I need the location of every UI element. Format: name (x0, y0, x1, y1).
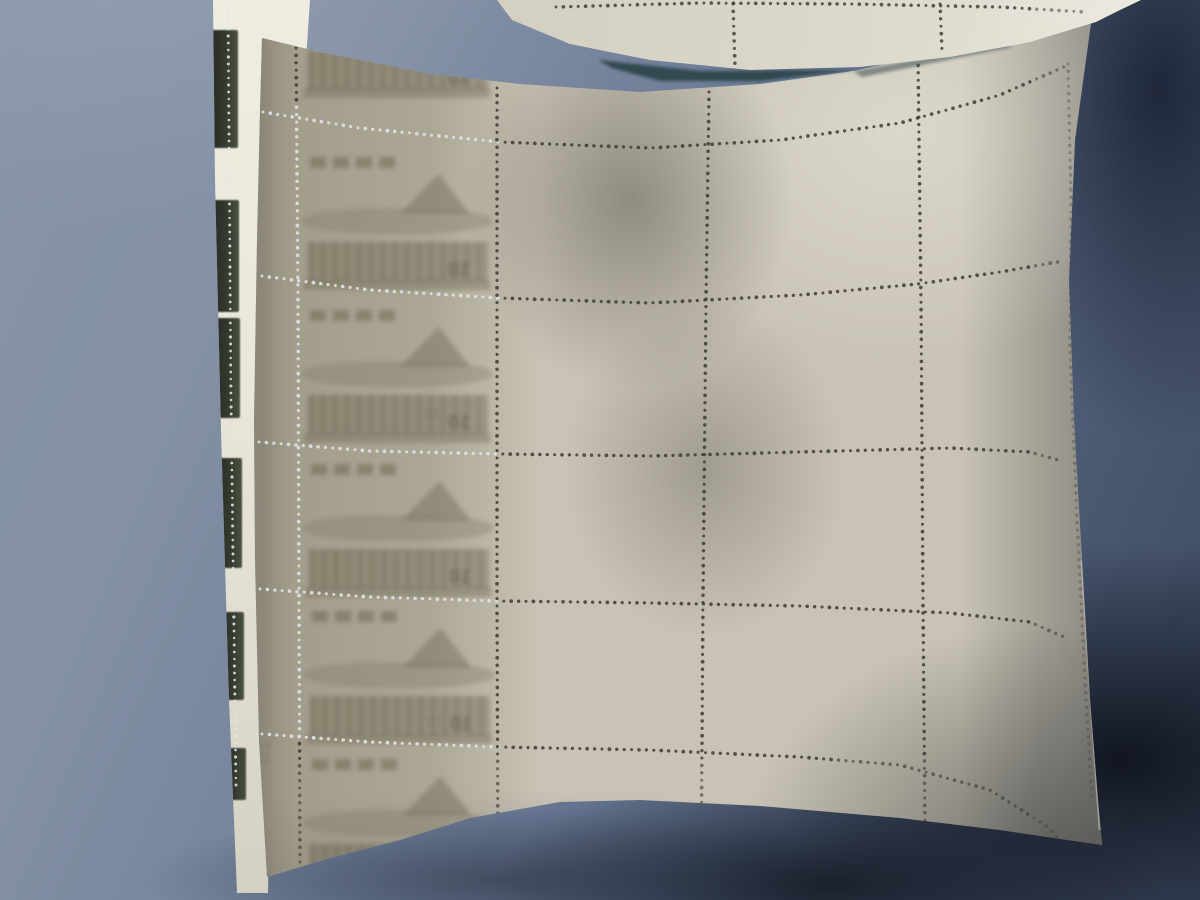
photo-canvas: 101010101010 101010 (0, 0, 1200, 900)
perforation-dot-line (555, 1, 1083, 13)
sheet-gap-shadow (0, 0, 1200, 900)
perforation-dot-line (731, 3, 736, 65)
perforation-dot-line (939, 3, 944, 50)
